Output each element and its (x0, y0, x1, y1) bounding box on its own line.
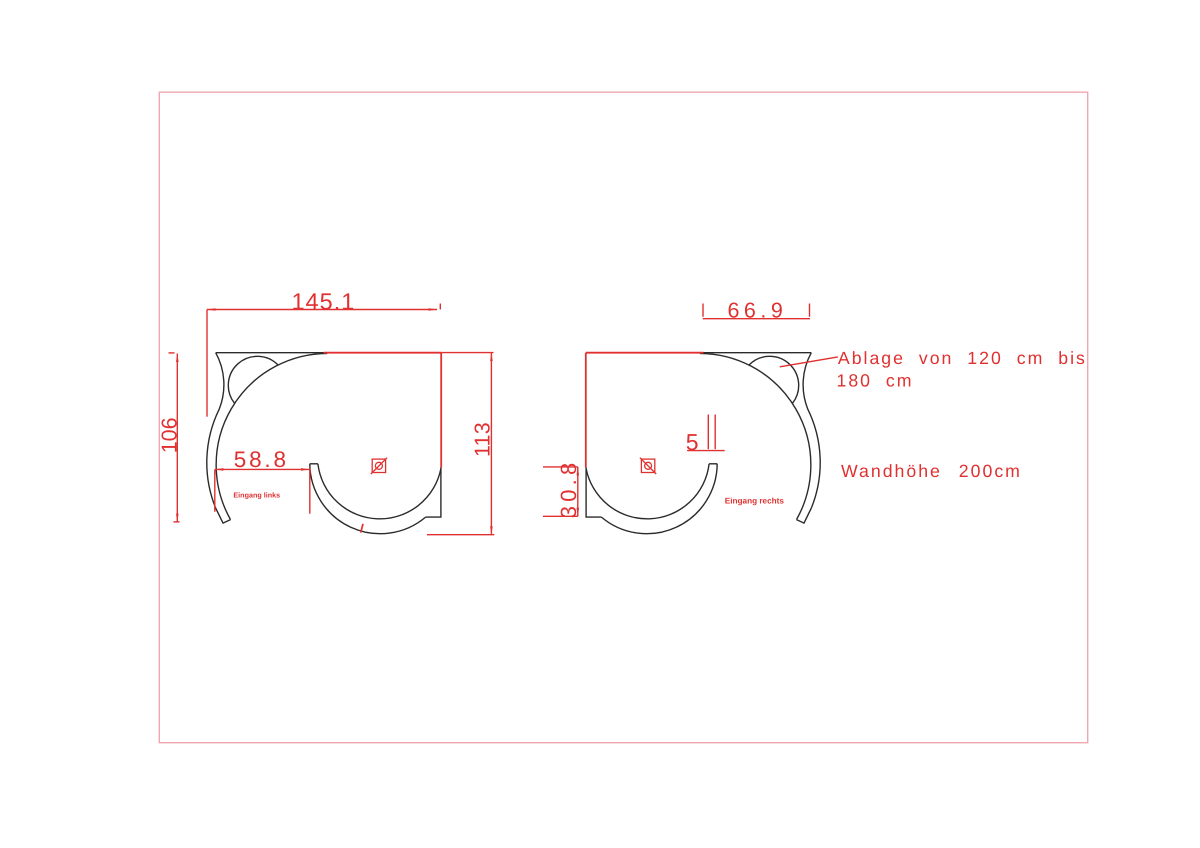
svg-text:106: 106 (158, 417, 182, 453)
svg-text:180 cm: 180 cm (837, 371, 914, 391)
svg-text:66.9: 66.9 (727, 298, 787, 322)
svg-text:Eingang links: Eingang links (233, 490, 280, 499)
svg-text:Ablage von 120 cm bis: Ablage von 120 cm bis (838, 348, 1087, 368)
svg-text:113: 113 (471, 422, 495, 457)
svg-text:30.8: 30.8 (556, 459, 581, 519)
svg-text:58.8: 58.8 (234, 447, 289, 472)
svg-text:Eingang rechts: Eingang rechts (725, 496, 785, 505)
svg-text:145.1: 145.1 (291, 289, 355, 315)
svg-text:5: 5 (686, 429, 699, 455)
svg-text:Wandhöhe 200cm: Wandhöhe 200cm (841, 461, 1022, 481)
